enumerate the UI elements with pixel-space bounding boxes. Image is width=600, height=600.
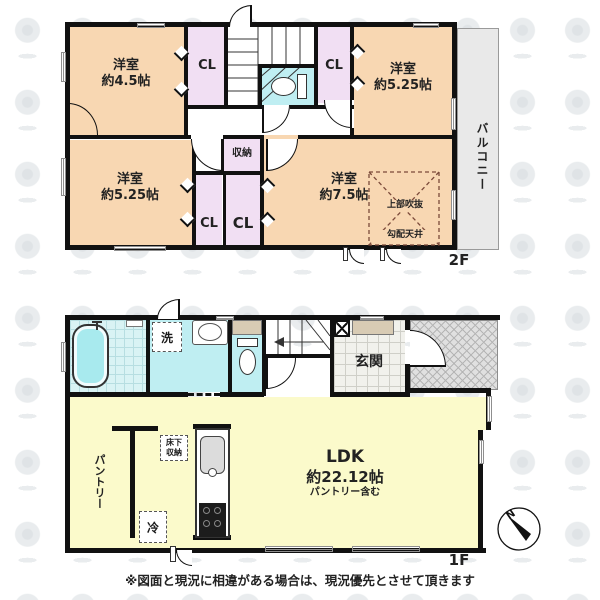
wall — [258, 64, 262, 109]
shower-icon — [92, 321, 102, 323]
room-name: 洋室 — [390, 62, 416, 77]
window — [413, 23, 439, 28]
stove-burner — [203, 507, 210, 514]
window — [479, 440, 484, 464]
underfloor-storage-line1: 床下 — [166, 438, 182, 448]
closet-label-mid-right: CL — [224, 214, 262, 233]
wall — [196, 171, 264, 175]
room-size: 約4.5帖 — [70, 74, 182, 90]
door-arc-washroom — [157, 299, 180, 319]
sliding-door — [188, 393, 220, 396]
window — [451, 190, 456, 220]
toilet-tank-icon — [297, 74, 307, 99]
refrigerator-label: 冷 — [147, 519, 159, 536]
ldk-label: LDK 約22.12帖 パントリー含む — [270, 447, 420, 500]
room-label-2f-ne: 洋室 約5.25帖 — [354, 62, 452, 95]
refrigerator-space: 冷 — [139, 511, 167, 543]
wall — [65, 135, 191, 139]
wall-pantry — [112, 426, 158, 431]
room-size: 約5.25帖 — [72, 188, 188, 204]
entrance-label: 玄関 — [334, 354, 404, 372]
ldk-name: LDK — [326, 447, 364, 467]
closet-label-nw: CL — [188, 58, 226, 74]
ldk-note: パントリー含む — [270, 487, 420, 500]
wall — [184, 27, 188, 139]
closet-2f-mid-left — [196, 175, 222, 245]
under-stair-closet — [334, 320, 350, 337]
window — [61, 158, 66, 196]
pantry-label: パントリー — [86, 440, 106, 522]
toilet-tank-icon — [237, 338, 258, 347]
window — [61, 52, 66, 82]
stairs-1f — [266, 320, 330, 356]
balcony-label: バルコニー — [467, 92, 489, 222]
room-size: 約5.25帖 — [354, 78, 452, 94]
window — [265, 546, 333, 552]
room-name: 洋室 — [113, 58, 139, 73]
wall — [184, 105, 262, 109]
door-arc-stairs-top — [229, 5, 252, 27]
window — [360, 316, 384, 320]
wall — [333, 392, 410, 397]
storage-label: 収納 — [222, 148, 262, 161]
floor-label-2f: 2F — [438, 251, 480, 270]
bathtub — [72, 324, 109, 388]
room-label-2f-se: 洋室 約7.5帖 — [298, 172, 390, 205]
stove-burner — [203, 520, 210, 527]
wall — [65, 392, 188, 397]
wall — [258, 64, 318, 68]
sloped-ceiling-label: 勾配天井 — [372, 230, 438, 241]
door-arc-small-left — [349, 249, 364, 264]
room-name: 洋室 — [117, 172, 143, 187]
washing-machine: 洗 — [152, 322, 182, 352]
disclaimer-text: ※図面と現況に相違がある場合は、現況優先とさせて頂きます — [0, 570, 600, 589]
window — [61, 342, 66, 372]
wall-pantry — [130, 426, 135, 538]
vanity-sink-icon — [198, 323, 222, 341]
toilet-bowl-icon — [271, 77, 296, 96]
floor-plan-page: { "colors": { "wall": "#111111", "room_p… — [0, 0, 600, 600]
back-door-arc — [176, 550, 192, 566]
window — [352, 546, 420, 552]
closet-2f-mid-right — [226, 175, 260, 245]
stove-burner — [214, 520, 221, 527]
ldk-size: 約22.12帖 — [270, 468, 420, 487]
window — [114, 246, 166, 251]
door-leaf — [380, 247, 385, 261]
compass: N — [495, 505, 543, 553]
wall — [146, 320, 150, 392]
shower-icon — [96, 322, 98, 330]
room-size: 約7.5帖 — [298, 188, 390, 204]
wall — [405, 388, 491, 393]
closet-label-ne: CL — [318, 58, 350, 74]
door-arc-small-right — [386, 249, 401, 264]
wall — [405, 320, 410, 330]
room-name: 洋室 — [331, 172, 357, 187]
door-leaf — [343, 247, 348, 261]
wall — [298, 135, 452, 139]
toilet-shelf — [232, 320, 262, 335]
window — [451, 98, 456, 130]
window — [216, 316, 234, 320]
floor-label-1f: 1F — [438, 551, 480, 570]
bath-counter — [126, 320, 143, 327]
washer-label: 洗 — [161, 329, 173, 346]
closet-label-mid-left: CL — [194, 216, 224, 232]
shoe-cabinet — [352, 320, 394, 335]
room-label-2f-nw: 洋室 約4.5帖 — [70, 58, 182, 91]
kitchen-faucet — [208, 468, 217, 477]
wall — [220, 392, 264, 397]
room-label-2f-sw: 洋室 約5.25帖 — [72, 172, 188, 205]
underfloor-storage-line2: 収納 — [166, 448, 182, 458]
wall — [223, 135, 264, 139]
wall — [223, 175, 226, 245]
window — [487, 396, 492, 422]
underfloor-storage: 床下 収納 — [160, 435, 188, 461]
stove-burner — [214, 507, 221, 514]
window — [137, 23, 165, 28]
toilet-bowl-icon — [239, 349, 256, 375]
door-leaf — [170, 546, 176, 562]
